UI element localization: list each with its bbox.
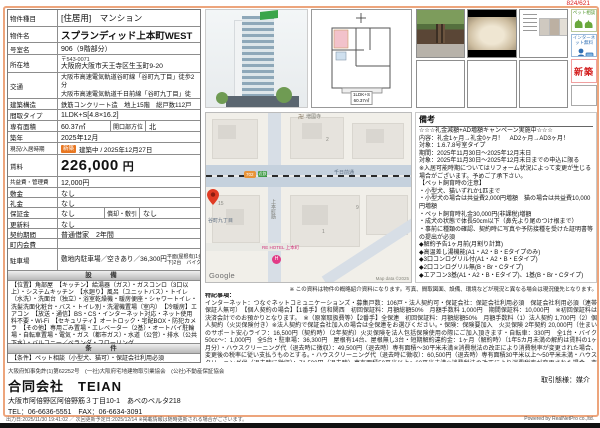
- internet-user-icon: [574, 48, 594, 57]
- table-row: 敷金なし: [8, 188, 200, 198]
- tree: [216, 92, 228, 104]
- bottom-bar: [0, 423, 600, 428]
- deal-type: 取引態様：媒介: [541, 375, 590, 385]
- table-row: 現況/入居時期 新築建築中 / 2025年12月27日: [8, 143, 200, 155]
- empty-photo-slot: [519, 60, 568, 109]
- company-name: 合同会社 TEIAN: [8, 376, 592, 395]
- building-tower: [242, 16, 274, 97]
- parking-detail: 平面(屋根有)1台 平面(屋根無)2台 機械式(地上)1台 機械式(地下)2台 …: [167, 254, 200, 266]
- table-row: 建築構造鉄筋コンクリート造 地上15階 総戸数112戸: [8, 99, 200, 110]
- company-address: 大阪市阿倍野区阿倍野筋３丁目10-1 あべのベルタ218: [8, 396, 592, 406]
- table-row: 共益費・管理費12,000円: [8, 177, 200, 188]
- pet-icon: [573, 18, 595, 29]
- street-label: 上本町筋: [270, 199, 277, 219]
- pet-ok-badge: ペット相談: [571, 9, 597, 32]
- rooftop-sign: [260, 10, 278, 20]
- conditions-text: 【条件】ペット相談（小型犬、猫可）・保証会社利用必須: [8, 354, 200, 365]
- table-row: 町内会費: [8, 239, 200, 249]
- property-sheet: 824/621 物件種目[住居用] マンション 物件名スプランディッド上本町WE…: [0, 0, 600, 428]
- table-row: 所在地 〒543-0071大阪府大阪市天王寺区生玉町9-20: [8, 55, 200, 73]
- building-photo: [205, 9, 308, 108]
- table-row: 物件種目[住居用] マンション: [8, 10, 200, 27]
- tree: [276, 87, 292, 103]
- road-label: 千日前通: [334, 169, 354, 176]
- feature-badges: ペット相談 インターネット無料 新築: [571, 9, 597, 110]
- output-date-line: 出力日:2025/11/30 19:41:02 ／ 次回更新予定日:2025/1…: [6, 416, 247, 423]
- new-construction-badge: 新築: [571, 59, 597, 83]
- table-row: 物件名スプランディッド上本町WEST: [8, 27, 200, 43]
- table-row: 交通大阪市高速電気軌道谷町線「谷町九丁目」徒歩2分 大阪市高速電気軌道千日前線「…: [8, 73, 200, 99]
- remarks-box: 備考 ☆☆☆礼金減額+AD増額キャンペーン実施中☆☆☆ 内容：礼金1ヶ月→礼金0…: [415, 112, 597, 283]
- rail-flag: 近鉄: [258, 171, 267, 177]
- google-logo: Google: [209, 271, 235, 280]
- color-swatch: [559, 18, 568, 36]
- table-row: 専有面積 60.37㎡ 開口部方位 北: [8, 121, 200, 132]
- table-row: 契約期間普通借家 2年間: [8, 229, 200, 239]
- powered-by: Powered by RealNetPro co.,ltd.: [524, 416, 594, 422]
- table-row: 礼金なし: [8, 198, 200, 208]
- compass-icon: [356, 13, 366, 23]
- railway-line: [206, 175, 411, 177]
- location-map[interactable]: 卍 増國寺 千日前通 702 近鉄 上本町筋 谷町九丁目 H RE HOTEL …: [205, 112, 412, 283]
- temple-icon: 卍: [298, 112, 304, 121]
- conditions-header: 条 件: [8, 344, 200, 354]
- table-row: 更新料なし: [8, 219, 200, 229]
- photo-grid: [416, 9, 568, 108]
- empty-photo-slot: [416, 60, 465, 109]
- floorplan-image: 1LDK+S 60.37㎡: [311, 9, 412, 108]
- entrance-photo: [416, 9, 465, 58]
- remarks-text: ☆☆☆礼金減額+AD増額キャンペーン実施中☆☆☆ 内容：礼金1ヶ月→礼金0ヶ月！…: [419, 128, 593, 280]
- empty-photo-slot: [467, 60, 516, 109]
- temple-label: 増國寺: [306, 113, 321, 120]
- color-sample-photo: [519, 9, 568, 58]
- hotel-label: RE HOTEL 上本町: [262, 246, 299, 251]
- remarks-header: 備考: [419, 114, 593, 127]
- table-row: 賃料 226,000円: [8, 155, 200, 177]
- facilities-text: 【位置】角部屋 【キッチン】給湯器（ガス）・ガスコンロ（3口以上）・システムキッ…: [8, 281, 200, 344]
- disclaimer-note: ※ この資料は物件の概略紹介資料になります。写真、間取図面、設備、環境などが現況…: [205, 285, 597, 293]
- table-row: 保証金 なし 償却・敷引 なし: [8, 208, 200, 219]
- special-notes-title: 特記事項：: [205, 293, 597, 301]
- table-row: 築年2025年12月: [8, 132, 200, 143]
- empty-badge-slot: [571, 85, 597, 106]
- property-table: 物件種目[住居用] マンション 物件名スプランディッド上本町WEST 号室名90…: [7, 9, 201, 363]
- interior-photo: [467, 9, 516, 58]
- hotel-marker: H: [272, 255, 281, 264]
- sample-text-lines: [523, 14, 537, 34]
- map-copyright: Map data ©2025: [376, 276, 409, 281]
- license-line: 大阪府知事免許(1)第62252号 (一社)大阪府宅地建物取引業協会 (公社)不…: [8, 367, 592, 375]
- special-notes: 特記事項： インターネット：つなぐネットコミュニケーションズ・募集戸数：106戸…: [205, 293, 597, 362]
- table-row: 号室名906（9階部分）: [8, 43, 200, 55]
- address: 大阪府大阪市天王寺区生玉町9-20: [61, 63, 163, 71]
- table-row: 駐車場 敷地内駐車場／空きあり／36,300円平面(屋根有)1台 平面(屋根無)…: [8, 249, 200, 271]
- access-lines: 大阪市高速電気軌道谷町線「谷町九丁目」徒歩2分 大阪市高速電気軌道千日前線「谷町…: [58, 73, 200, 98]
- free-internet-badge: インターネット無料: [571, 34, 597, 57]
- facilities-header: 設 備: [8, 271, 200, 281]
- parking-main: 敷地内駐車場／空きあり／36,300円: [61, 256, 167, 264]
- status-badge: 新築: [61, 145, 76, 153]
- property-name: スプランディッド上本町WEST: [58, 27, 200, 42]
- special-notes-text: インターネット：つなぐネットコミュニケーションズ・募集戸数：106戸・法人契約可…: [205, 301, 597, 363]
- rent-amount: 226,000: [61, 157, 119, 174]
- ref-number: 824/621: [567, 0, 591, 7]
- company-info: 大阪府知事免許(1)第62252号 (一社)大阪府宅地建物取引業協会 (公社)不…: [8, 367, 592, 411]
- station-label: 谷町九丁目: [208, 217, 233, 224]
- route-shield: 702: [244, 171, 256, 178]
- table-row: 間取タイプ1LDK+S[4.8×16.2]: [8, 110, 200, 121]
- floorplan-caption: 1LDK+S 60.37㎡: [350, 91, 373, 105]
